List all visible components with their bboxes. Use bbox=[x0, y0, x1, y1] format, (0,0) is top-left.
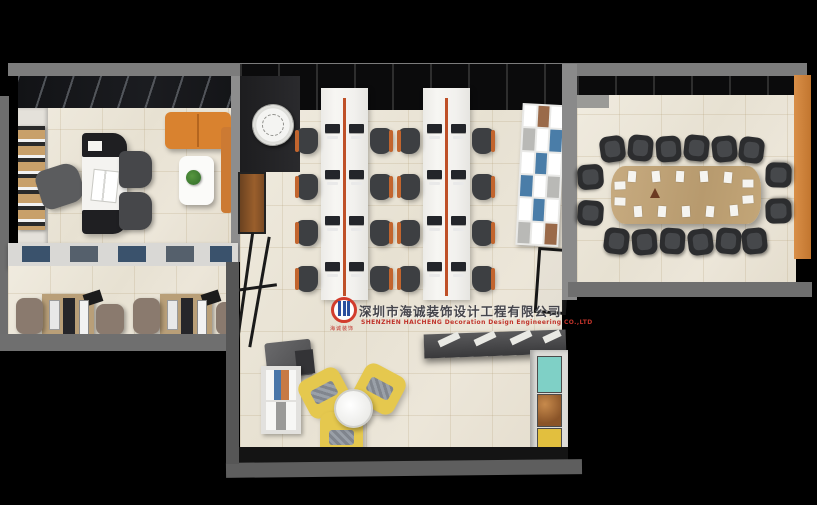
guest-chair bbox=[119, 151, 152, 188]
skylight-panel bbox=[22, 246, 50, 262]
meeting-paper bbox=[742, 195, 754, 204]
meeting-paper bbox=[730, 205, 739, 217]
sofa-seam bbox=[197, 114, 199, 147]
meeting-paper bbox=[682, 206, 691, 217]
office-chair bbox=[398, 174, 420, 200]
task-chair bbox=[16, 298, 43, 334]
office-chair bbox=[370, 266, 392, 292]
shelf-cell bbox=[536, 129, 549, 151]
company-name-zh: 深圳市海诚装饰设计工程有限公司 bbox=[359, 301, 562, 320]
monitor bbox=[427, 124, 442, 133]
keyboard bbox=[429, 274, 440, 277]
keyboard bbox=[327, 228, 338, 231]
floor-notch bbox=[577, 95, 609, 108]
keyboard bbox=[351, 228, 362, 231]
keyboard bbox=[453, 228, 464, 231]
meeting-paper bbox=[614, 197, 625, 205]
open-documents bbox=[90, 169, 119, 204]
shelf-cell bbox=[548, 153, 561, 175]
shelf-cell bbox=[519, 198, 532, 220]
monitor bbox=[349, 262, 364, 271]
meeting-paper bbox=[628, 171, 637, 183]
meeting-paper bbox=[634, 206, 643, 218]
conference-chair bbox=[598, 134, 626, 163]
meeting-paper bbox=[743, 180, 754, 188]
meeting-paper bbox=[706, 206, 715, 218]
conference-bottom-wall bbox=[568, 282, 812, 297]
monitor bbox=[349, 170, 364, 179]
monitor bbox=[451, 262, 466, 271]
keyboard bbox=[327, 182, 338, 185]
company-name-en: SHENZHEN HAICHENG Decoration Design Engi… bbox=[361, 319, 593, 326]
shelf-stripes-bottom bbox=[266, 402, 296, 430]
shelf-cell bbox=[537, 106, 550, 128]
plaque-marks bbox=[262, 114, 284, 136]
monitor bbox=[49, 300, 60, 330]
monitor bbox=[451, 216, 466, 225]
conference-chair bbox=[738, 136, 766, 165]
desk-paper bbox=[88, 141, 102, 151]
wall-artwork bbox=[537, 394, 562, 427]
wood-cabinet bbox=[238, 172, 266, 234]
shelf-cell bbox=[533, 176, 546, 198]
task-chair bbox=[96, 304, 124, 335]
desk-tray bbox=[197, 300, 207, 336]
meeting-paper bbox=[676, 171, 685, 182]
conference-chair bbox=[655, 135, 682, 163]
meeting-paper bbox=[658, 206, 667, 218]
monitor bbox=[349, 216, 364, 225]
office-chair bbox=[398, 220, 420, 246]
keyboard bbox=[453, 182, 464, 185]
conference-chair bbox=[577, 200, 605, 227]
office-chair bbox=[472, 266, 494, 292]
monitor bbox=[325, 216, 340, 225]
skylight-panel bbox=[70, 246, 98, 262]
monitor bbox=[349, 124, 364, 133]
office-chair bbox=[398, 128, 420, 154]
display-shelf bbox=[515, 103, 565, 247]
pillow bbox=[329, 430, 354, 445]
monitor bbox=[427, 216, 442, 225]
office-rendering: 海诚装饰 深圳市海诚装饰设计工程有限公司 SHENZHEN HAICHENG D… bbox=[0, 0, 817, 505]
skylight-panel bbox=[210, 246, 232, 262]
shelf-cell bbox=[550, 130, 563, 152]
conference-left-wall bbox=[562, 64, 577, 300]
keyboard bbox=[351, 182, 362, 185]
conference-chair bbox=[741, 227, 769, 255]
shelf-cell bbox=[522, 128, 535, 150]
conference-chair bbox=[683, 134, 711, 162]
lounge-outer-wall bbox=[226, 459, 582, 478]
desk-partition bbox=[63, 298, 75, 334]
shelf-cell bbox=[521, 152, 534, 174]
shelf-cell bbox=[532, 199, 545, 221]
conference-chair bbox=[687, 228, 715, 257]
keyboard bbox=[429, 136, 440, 139]
office-chair bbox=[472, 128, 494, 154]
monitor bbox=[427, 262, 442, 271]
conference-chair bbox=[711, 135, 739, 163]
conference-chair bbox=[627, 134, 654, 162]
keyboard bbox=[351, 274, 362, 277]
plant bbox=[186, 170, 201, 185]
meeting-paper bbox=[614, 181, 625, 189]
shelf-stripes-top bbox=[266, 370, 296, 400]
conference-chair bbox=[715, 227, 742, 255]
keyboard bbox=[327, 274, 338, 277]
desk-tray bbox=[79, 300, 89, 336]
cable-tray bbox=[343, 98, 346, 296]
logo-caption: 海诚装饰 bbox=[330, 325, 354, 332]
keyboard bbox=[429, 182, 440, 185]
conference-chair bbox=[577, 164, 605, 191]
cable-tray bbox=[445, 98, 448, 296]
meeting-paper bbox=[700, 171, 709, 183]
office-chair bbox=[296, 128, 318, 154]
monitor bbox=[325, 124, 340, 133]
shelf-cell bbox=[535, 152, 548, 174]
shelf-cell bbox=[524, 105, 537, 127]
office-chair bbox=[296, 174, 318, 200]
monitor bbox=[451, 170, 466, 179]
keyboard bbox=[453, 274, 464, 277]
keyboard bbox=[429, 228, 440, 231]
monitor bbox=[325, 170, 340, 179]
skylight-panel bbox=[118, 246, 146, 262]
office-chair bbox=[370, 128, 392, 154]
desk-partition bbox=[181, 298, 193, 334]
conference-chair bbox=[603, 227, 631, 256]
conference-chair bbox=[659, 227, 686, 255]
monitor bbox=[325, 262, 340, 271]
shelf-cell bbox=[545, 223, 558, 245]
shelf-cell bbox=[546, 200, 559, 222]
shelf-cell bbox=[547, 176, 560, 198]
keyboard bbox=[453, 136, 464, 139]
center-left-lower-wall bbox=[226, 262, 239, 464]
office-chair bbox=[296, 220, 318, 246]
conference-chair bbox=[765, 162, 792, 188]
company-logo bbox=[331, 297, 357, 323]
office-chair bbox=[472, 174, 494, 200]
teal-panel bbox=[537, 356, 562, 393]
office-chair bbox=[296, 266, 318, 292]
office-chair bbox=[370, 220, 392, 246]
meeting-paper bbox=[724, 172, 733, 184]
monitor bbox=[427, 170, 442, 179]
skylight-panel bbox=[166, 246, 194, 262]
guest-chair bbox=[119, 192, 152, 230]
accent-wall-orange bbox=[794, 75, 811, 259]
round-table bbox=[334, 389, 373, 428]
office-chair bbox=[472, 220, 494, 246]
shelf-cell bbox=[520, 175, 533, 197]
monitor bbox=[451, 124, 466, 133]
office-chair bbox=[370, 174, 392, 200]
task-chair bbox=[133, 298, 160, 334]
staff-room-bottom-wall bbox=[0, 334, 238, 351]
office-chair bbox=[398, 266, 420, 292]
divider-wall bbox=[231, 76, 240, 262]
keyboard bbox=[327, 136, 338, 139]
logo-h-icon bbox=[338, 301, 350, 316]
monitor bbox=[167, 300, 178, 330]
shelf-cell bbox=[531, 222, 544, 244]
conference-chair bbox=[765, 198, 792, 224]
glass-ceiling bbox=[18, 76, 232, 111]
shelf-cell bbox=[517, 222, 530, 244]
conference-chair bbox=[631, 228, 658, 256]
meeting-paper bbox=[652, 171, 661, 183]
keyboard bbox=[351, 136, 362, 139]
